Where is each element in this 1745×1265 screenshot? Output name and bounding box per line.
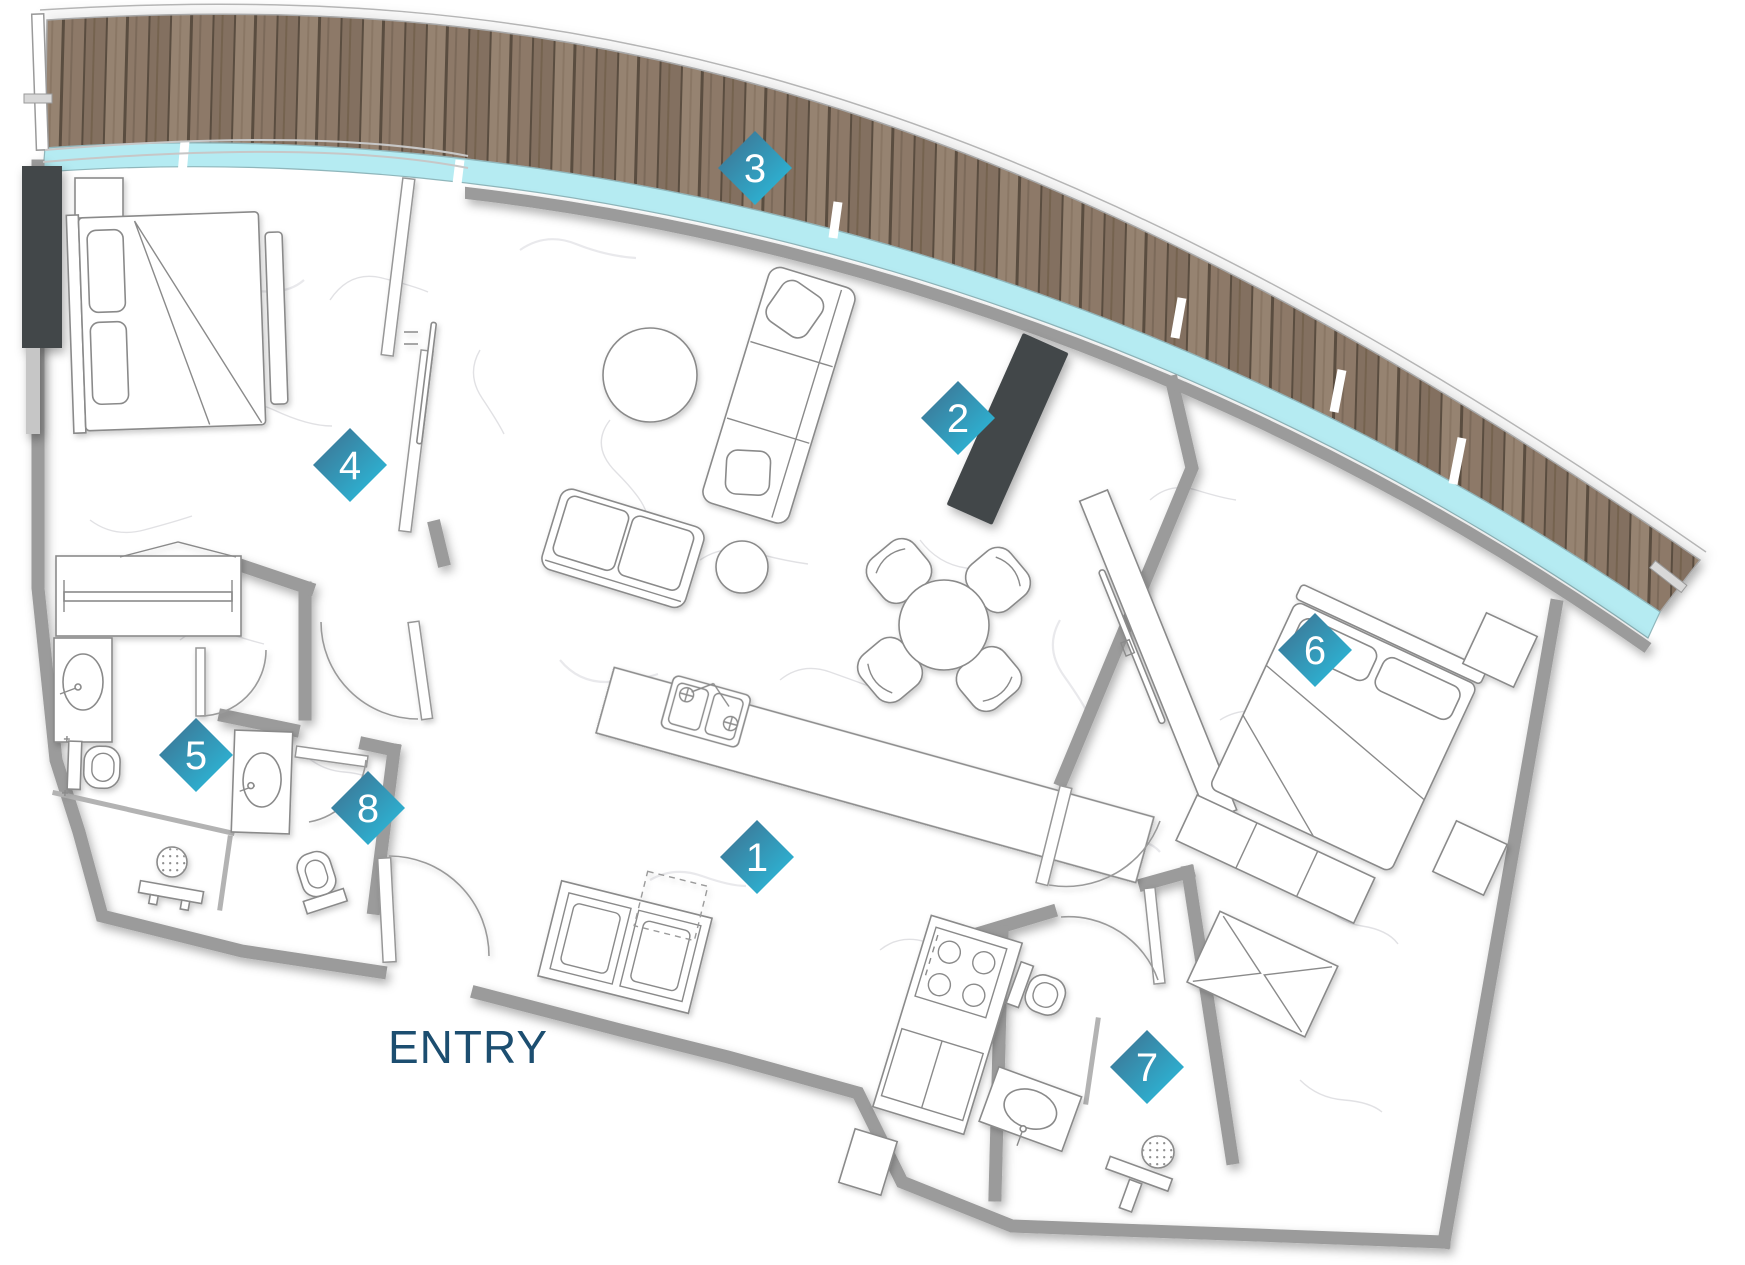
coffee-table xyxy=(603,328,697,422)
marker-7-label: 7 xyxy=(1136,1046,1158,1090)
sofa-pillow xyxy=(725,449,771,495)
marker-5-label: 5 xyxy=(185,734,207,778)
side-table xyxy=(716,541,768,593)
wall-partition-stub xyxy=(435,527,443,560)
marker-2-label: 2 xyxy=(947,397,969,441)
dining-table xyxy=(899,580,989,670)
balcony-left-tick xyxy=(24,94,52,103)
wardrobe-1 xyxy=(56,542,241,636)
sink-5 xyxy=(63,654,103,710)
pillow xyxy=(90,321,129,404)
pillow xyxy=(87,229,126,312)
column-base-strip xyxy=(26,348,40,434)
floor-plan-page: 1 2 3 4 5 6 7 8 ENTRY xyxy=(0,0,1745,1265)
nightstand xyxy=(75,178,123,218)
marker-3-label: 3 xyxy=(744,147,766,191)
marker-1-label: 1 xyxy=(746,836,768,880)
marker-4-label: 4 xyxy=(339,444,361,488)
structural-column xyxy=(22,166,62,348)
entry-label: ENTRY xyxy=(388,1021,548,1073)
marker-8-label: 8 xyxy=(357,787,379,831)
shower-head-dots-7 xyxy=(1143,1137,1173,1167)
marker-6-label: 6 xyxy=(1304,629,1326,673)
shower-head-dots-5 xyxy=(158,848,186,876)
floor-plan: 1 2 3 4 5 6 7 8 ENTRY xyxy=(0,0,1745,1265)
